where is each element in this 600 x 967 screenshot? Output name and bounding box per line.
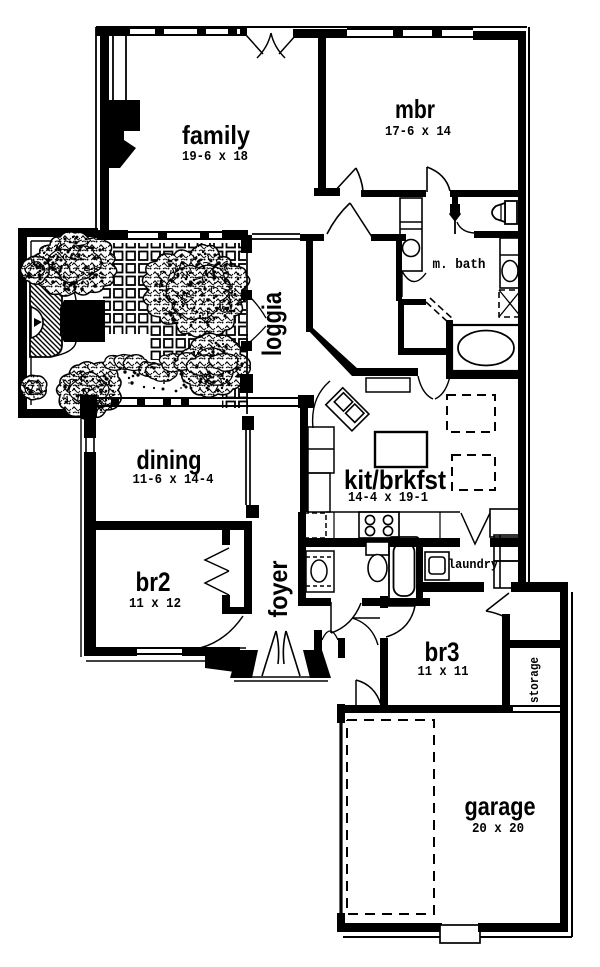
svg-text:loggia: loggia	[257, 291, 287, 356]
svg-text:m. bath: m. bath	[433, 257, 486, 273]
svg-text:br3: br3	[425, 637, 460, 667]
svg-text:storage: storage	[527, 657, 542, 703]
svg-text:garage: garage	[465, 791, 536, 821]
svg-text:foyer: foyer	[263, 561, 293, 618]
svg-text:family: family	[182, 120, 250, 150]
svg-text:14-4 x 19-1: 14-4 x 19-1	[348, 490, 428, 506]
svg-text:laundry: laundry	[448, 557, 498, 572]
svg-text:11-6 x 14-4: 11-6 x 14-4	[133, 472, 214, 488]
svg-text:17-6 x 14: 17-6 x 14	[385, 124, 451, 140]
svg-text:mbr: mbr	[395, 94, 435, 124]
svg-text:11 x 11: 11 x 11	[418, 664, 469, 680]
svg-text:19-6 x 18: 19-6 x 18	[182, 149, 248, 165]
svg-text:dining: dining	[137, 445, 202, 475]
svg-text:20 x 20: 20 x 20	[472, 821, 524, 837]
svg-text:br2: br2	[136, 567, 171, 597]
svg-text:11 x 12: 11 x 12	[129, 596, 181, 612]
